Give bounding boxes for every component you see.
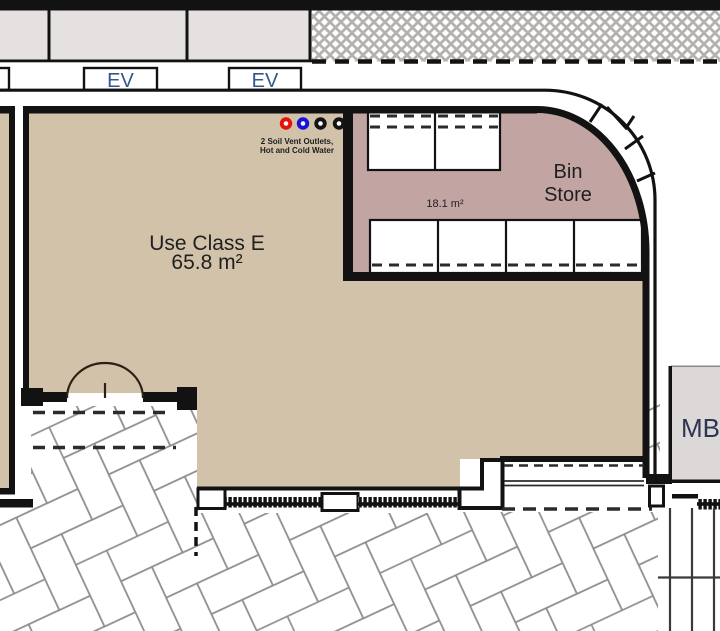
bin-store-label-line2: Store xyxy=(544,184,592,206)
bin-store-area-label: 18.1 m² xyxy=(426,198,464,210)
ev-box-partial xyxy=(0,68,9,90)
corner-pier xyxy=(650,486,664,506)
main-room-area-label: 65.8 m² xyxy=(171,251,242,274)
meter-box: MB xyxy=(669,366,720,484)
glazing-band-2 xyxy=(358,497,459,508)
crosshatch-landscape-area xyxy=(312,11,720,62)
road-edge-band xyxy=(0,0,720,11)
rear-sill-line xyxy=(500,456,646,462)
parking-bays xyxy=(0,11,312,62)
floor-plan-page: EV EV xyxy=(0,0,720,631)
meter-box-label: MB xyxy=(681,413,720,443)
shopfront-pier-left xyxy=(198,489,225,509)
floor-plan-canvas: EV EV xyxy=(0,0,720,631)
glazing-band-1 xyxy=(225,497,322,508)
corner-wall-block xyxy=(646,474,672,484)
bin-store-label-line1: Bin xyxy=(554,161,583,183)
vent-note-line1: 2 Soil Vent Outlets, xyxy=(261,137,333,146)
vent-note-line2: Hot and Cold Water xyxy=(260,146,334,155)
mb-sill-line xyxy=(672,494,698,499)
adjacent-unit-floor xyxy=(0,113,9,489)
shopfront-head-line xyxy=(197,487,459,491)
bay-front-line xyxy=(0,60,312,63)
shopfront-pier-mid xyxy=(322,494,358,511)
glazing-band-3 xyxy=(697,499,720,510)
